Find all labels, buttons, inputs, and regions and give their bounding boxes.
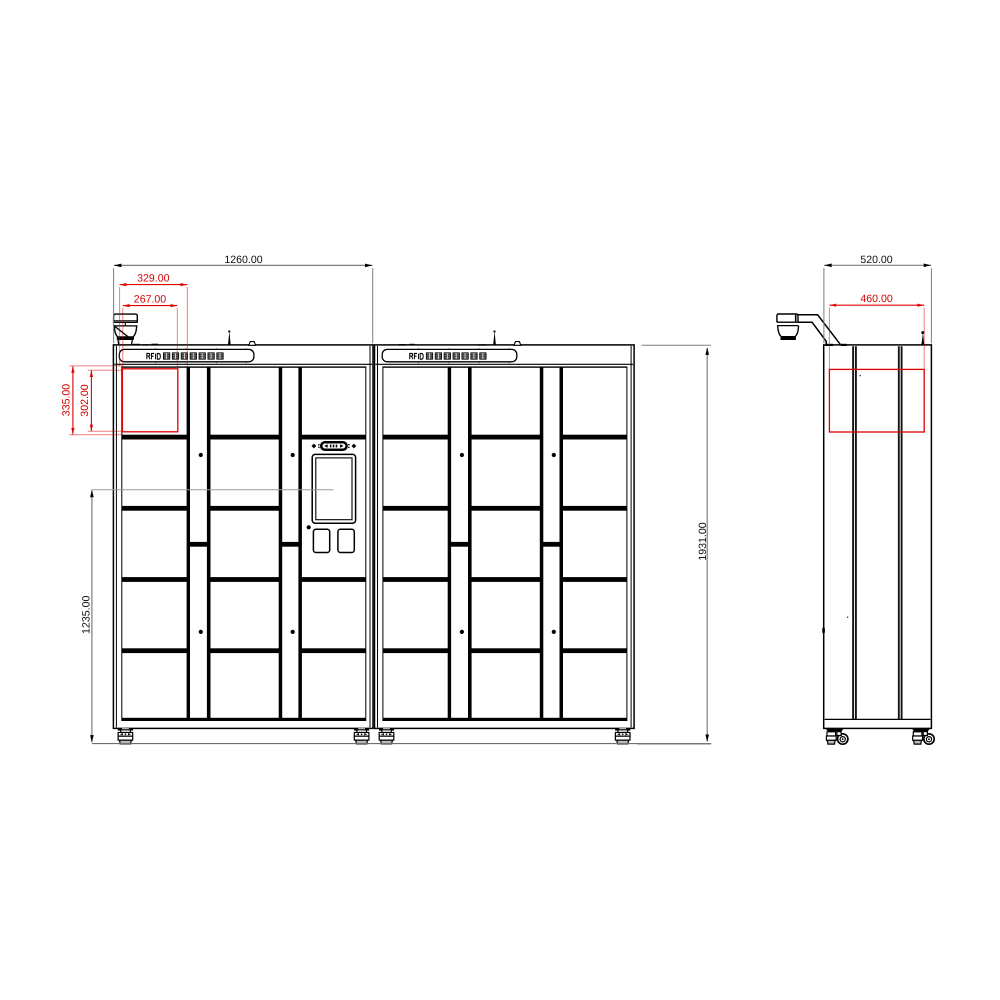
svg-text:1931.00: 1931.00 (697, 522, 709, 560)
svg-text:302.00: 302.00 (79, 384, 91, 417)
svg-text:1260.00: 1260.00 (224, 254, 262, 266)
svg-text:1235.00: 1235.00 (80, 596, 92, 634)
svg-text:329.00: 329.00 (137, 273, 170, 285)
svg-text:520.00: 520.00 (860, 254, 893, 266)
svg-text:460.00: 460.00 (860, 293, 893, 305)
svg-text:267.00: 267.00 (134, 294, 167, 306)
svg-text:335.00: 335.00 (61, 384, 73, 417)
